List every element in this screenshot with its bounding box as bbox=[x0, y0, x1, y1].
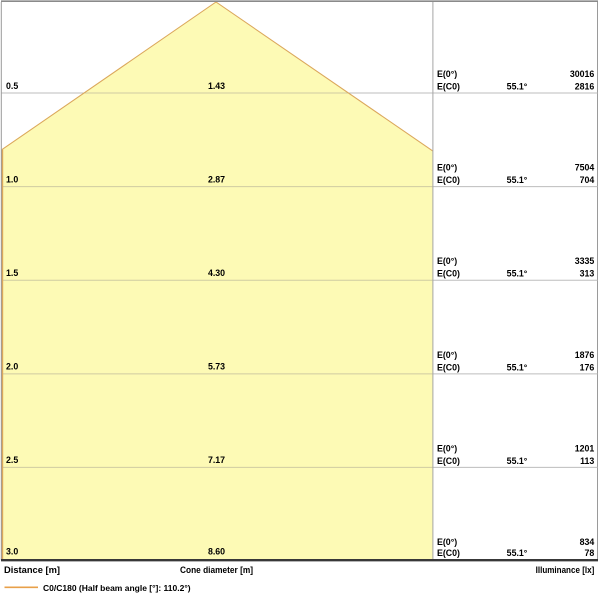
svg-text:E(C0): E(C0) bbox=[437, 362, 460, 372]
svg-text:5.73: 5.73 bbox=[208, 362, 225, 372]
svg-text:3335: 3335 bbox=[575, 256, 595, 266]
svg-text:1201: 1201 bbox=[575, 443, 595, 453]
svg-text:834: 834 bbox=[580, 537, 595, 547]
svg-text:E(C0): E(C0) bbox=[437, 175, 460, 185]
svg-text:55.1°: 55.1° bbox=[507, 456, 528, 466]
svg-text:2.87: 2.87 bbox=[208, 174, 225, 184]
svg-text:Cone diameter [m]: Cone diameter [m] bbox=[180, 565, 253, 576]
svg-text:1876: 1876 bbox=[575, 350, 595, 360]
svg-text:55.1°: 55.1° bbox=[507, 269, 528, 279]
svg-text:55.1°: 55.1° bbox=[507, 175, 528, 185]
svg-text:E(0°): E(0°) bbox=[437, 163, 457, 173]
svg-text:E(C0): E(C0) bbox=[437, 548, 460, 558]
svg-text:1.43: 1.43 bbox=[208, 81, 225, 91]
svg-text:704: 704 bbox=[580, 175, 595, 185]
svg-text:Distance [m]: Distance [m] bbox=[4, 565, 60, 576]
svg-text:4.30: 4.30 bbox=[208, 268, 225, 278]
svg-text:8.60: 8.60 bbox=[208, 546, 225, 556]
svg-text:E(0°): E(0°) bbox=[437, 69, 457, 79]
svg-text:E(0°): E(0°) bbox=[437, 256, 457, 266]
svg-text:55.1°: 55.1° bbox=[507, 548, 528, 558]
svg-text:E(0°): E(0°) bbox=[437, 443, 457, 453]
svg-text:E(C0): E(C0) bbox=[437, 269, 460, 279]
svg-text:E(C0): E(C0) bbox=[437, 81, 460, 91]
svg-text:7.17: 7.17 bbox=[208, 455, 225, 465]
svg-text:78: 78 bbox=[585, 548, 595, 558]
svg-text:C0/C180 (Half beam angle [°]:: C0/C180 (Half beam angle [°]: 110.2°) bbox=[43, 583, 191, 593]
svg-text:2816: 2816 bbox=[575, 81, 595, 91]
svg-text:113: 113 bbox=[580, 456, 594, 466]
svg-text:7504: 7504 bbox=[575, 163, 595, 173]
svg-text:E(C0): E(C0) bbox=[437, 456, 460, 466]
svg-text:E(0°): E(0°) bbox=[437, 350, 457, 360]
svg-text:176: 176 bbox=[580, 362, 595, 372]
svg-text:30016: 30016 bbox=[570, 69, 595, 79]
svg-text:2.5: 2.5 bbox=[6, 455, 18, 465]
svg-text:Illuminance [lx]: Illuminance [lx] bbox=[536, 565, 595, 576]
svg-text:55.1°: 55.1° bbox=[507, 81, 528, 91]
svg-text:3.0: 3.0 bbox=[6, 546, 18, 556]
svg-text:2.0: 2.0 bbox=[6, 362, 18, 372]
svg-text:0.5: 0.5 bbox=[6, 81, 18, 91]
svg-text:55.1°: 55.1° bbox=[507, 362, 528, 372]
svg-text:E(0°): E(0°) bbox=[437, 537, 457, 547]
svg-text:313: 313 bbox=[580, 269, 595, 279]
svg-text:1.0: 1.0 bbox=[6, 174, 18, 184]
svg-text:1.5: 1.5 bbox=[6, 268, 18, 278]
